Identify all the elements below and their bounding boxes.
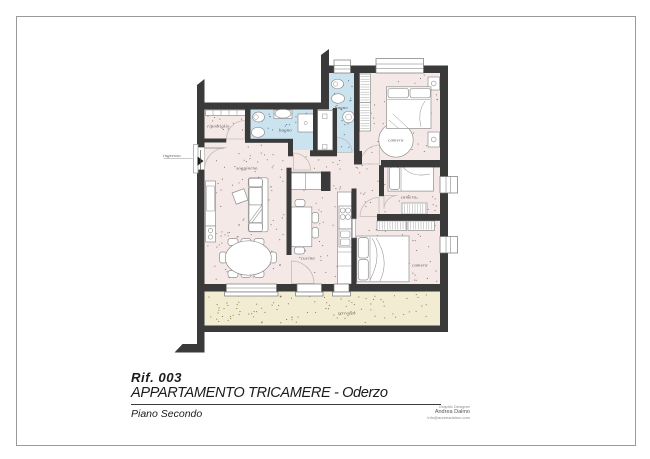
svg-text:camera: camera	[388, 138, 404, 143]
svg-text:cucina: cucina	[301, 256, 315, 261]
svg-text:ripostiglio: ripostiglio	[207, 124, 230, 129]
svg-text:bagno: bagno	[279, 128, 292, 133]
svg-text:ingresso: ingresso	[163, 153, 181, 158]
svg-text:terrazzo: terrazzo	[338, 311, 356, 316]
svg-text:camera: camera	[412, 263, 428, 268]
svg-text:camera: camera	[401, 195, 417, 200]
svg-text:bagno: bagno	[335, 105, 348, 110]
svg-text:soggiorno: soggiorno	[236, 166, 258, 171]
